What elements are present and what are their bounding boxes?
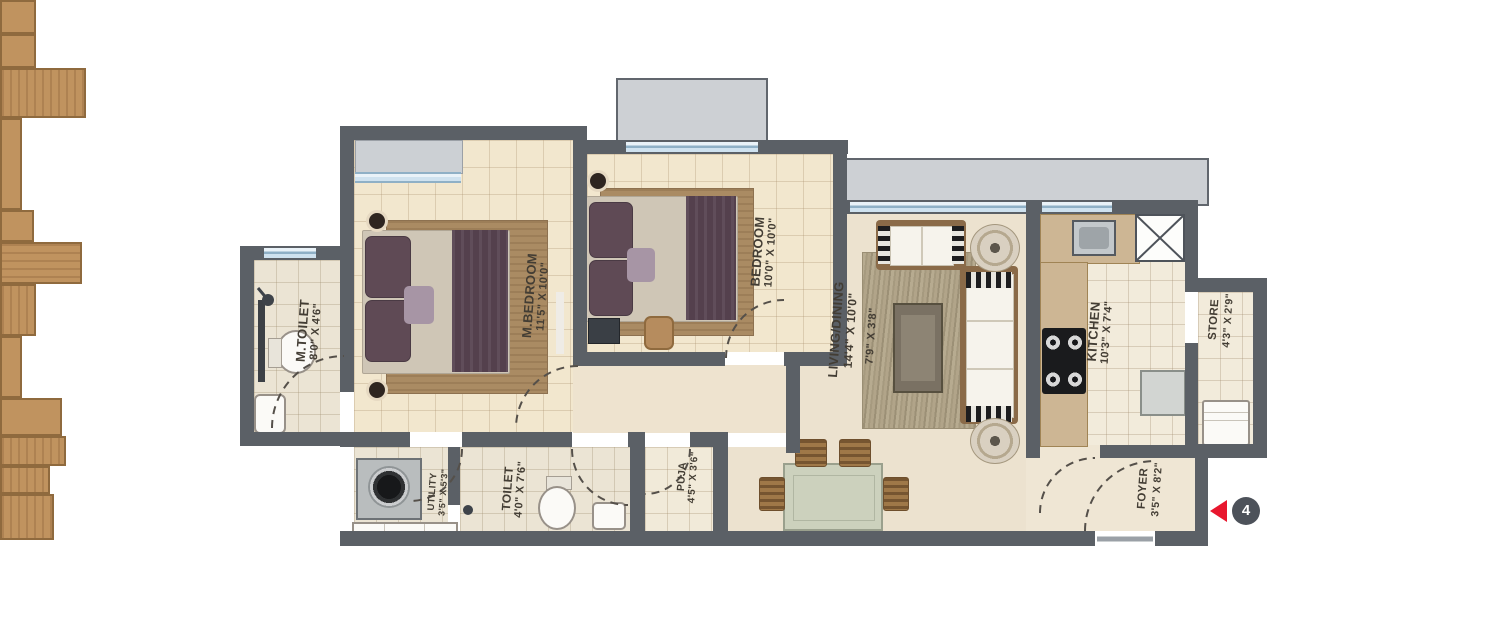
m-bedroom-nightstand-bottom [0,34,36,68]
kitchen-label: KITCHEN 10'3" X 7'4" [1084,299,1117,364]
m-bedroom-wardrobe [0,68,86,118]
m-bedroom-cushion [404,286,434,324]
wall [713,432,728,533]
living-sofa-long-cushions [966,274,1014,418]
m-bedroom-window-bay [355,140,463,174]
toilet-wc [538,486,576,530]
dining-table-inner [793,475,875,521]
shaft-box [1135,214,1185,262]
store-shelf [0,494,54,540]
living-sofa-long-bolster-1 [966,272,1012,288]
wall [240,246,254,446]
dining-chair-2 [839,439,871,467]
wall [340,531,1095,546]
toilet-sink [592,502,626,530]
bedroom-wardrobe-top [0,242,82,284]
deck-above-bedroom [616,78,768,144]
wall [1155,531,1208,546]
wall [573,154,587,365]
bedroom-cushion [627,248,655,282]
m-bedroom-dresser [0,118,22,210]
kitchen-cabinet [0,466,50,494]
utility-label: UTILITY 3'5" X 5'3" [425,468,450,517]
wall [573,352,725,366]
shower-partition [258,300,265,382]
m-bedroom-lamp-top [366,210,388,232]
m-bedroom-nightstand-top [0,0,36,34]
bedroom-pillow-1 [589,202,633,258]
prev-arrow-icon[interactable] [1210,500,1227,522]
wall [340,126,354,392]
m-toilet-window [264,246,316,260]
bedroom-console [0,336,22,398]
dining-chair-3 [759,477,785,511]
deck-above-living-kitchen [843,158,1209,206]
m-bedroom-lamp-bottom [366,379,388,401]
wall [1253,278,1267,458]
living-center-table-top [901,315,935,381]
m-bedroom-blanket [452,230,508,372]
wall [462,432,572,447]
living-side-table-bottom [970,418,1020,464]
toilet-label: TOILET 4'0" X 7'6" [498,460,529,519]
bedroom-label: BEDROOM 10'0" X 10'0" [747,216,780,288]
wall [630,432,645,546]
bedroom-desk [0,398,62,436]
kitchen-window [1042,200,1112,214]
wall [340,432,410,447]
wall [1026,200,1040,458]
foyer-label: FOYER 3'5" X 8'2" [1135,461,1165,517]
wall [690,432,715,447]
bedroom-nightstand [0,210,34,242]
dining-chair-4 [883,477,909,511]
m-bedroom-window-glass [355,172,461,183]
bedroom-lamp [587,170,609,192]
bedroom-laptop [588,318,620,344]
living-window [850,200,1026,214]
living-sofa-small-bolster-2 [952,226,964,264]
bedroom-chair [644,316,674,350]
bedroom-window [626,140,758,154]
store-appliance [1202,400,1250,446]
living-side-table-top [970,224,1020,272]
living-sofa-small-bolster-1 [878,226,890,264]
wall [1100,445,1198,458]
m-bedroom-dresser-mirror [556,292,564,354]
floor-plan-canvas: M.TOILET 8'0" X 4'6" M.BEDROOM 11'5" X 1… [0,0,1500,625]
store-label: STORE 4'3" X 2'9" [1206,292,1236,348]
kitchen-sink-basin [1079,227,1109,249]
m-toilet-wc-tank [268,338,282,368]
passage-floor [573,365,786,433]
bedroom-wardrobe-right [0,284,36,336]
puja-label: PUJA 4'5" X 3'6" [674,450,702,504]
kitchen-fridge [1140,370,1186,416]
puja-shelf [0,436,66,466]
m-bedroom-label: M.BEDROOM 11'5" X 10'0" [519,253,553,340]
washing-machine-drum [368,466,410,508]
bedroom-blanket [686,196,736,320]
kitchen-stove [1042,328,1086,394]
wall [1185,343,1198,458]
wall [786,352,800,453]
m-toilet-label: M.TOILET 8'0" X 4'6" [293,299,326,364]
wall [240,432,354,446]
page-marker-badge[interactable]: 4 [1232,497,1260,525]
living-sofa-small-cushion [890,226,954,266]
wall [340,126,587,140]
m-toilet-sink [254,394,286,434]
